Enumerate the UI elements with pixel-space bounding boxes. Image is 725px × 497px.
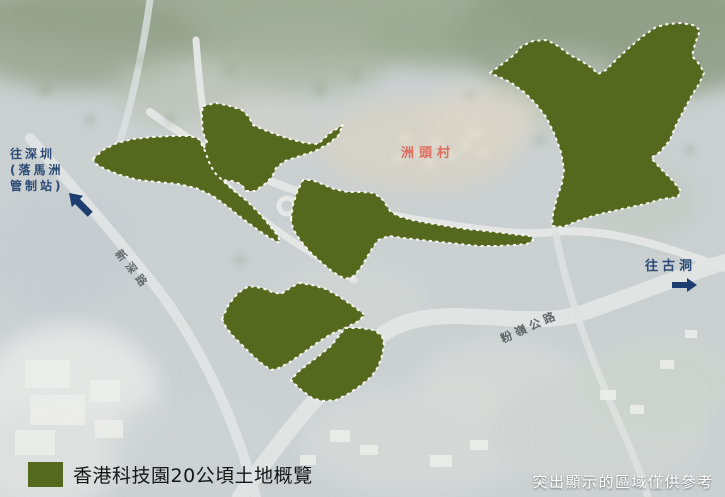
to-shenzhen-line1: 往深圳 — [10, 146, 64, 162]
to-shenzhen-label: 往深圳 (落馬洲 管制站) — [10, 146, 64, 194]
aerial-map-svg — [0, 0, 725, 497]
legend-label: 香港科技園20公頃土地概覽 — [73, 461, 313, 488]
disclaimer-note: 突出顯示的區域僅供參考 — [532, 471, 714, 492]
village-label: 洲頭村 — [401, 142, 455, 161]
to-shenzhen-line3: 管制站) — [10, 178, 64, 194]
legend: 香港科技園20公頃土地概覽 — [28, 461, 313, 488]
to-kwu-tung-label: 往古洞 — [645, 255, 696, 274]
to-shenzhen-line2: (落馬洲 — [10, 162, 64, 178]
legend-color-swatch — [28, 462, 63, 487]
map-canvas: 往深圳 (落馬洲 管制站) 洲頭村 新深路 粉嶺公路 往古洞 香港科技園20公頃… — [0, 0, 725, 497]
